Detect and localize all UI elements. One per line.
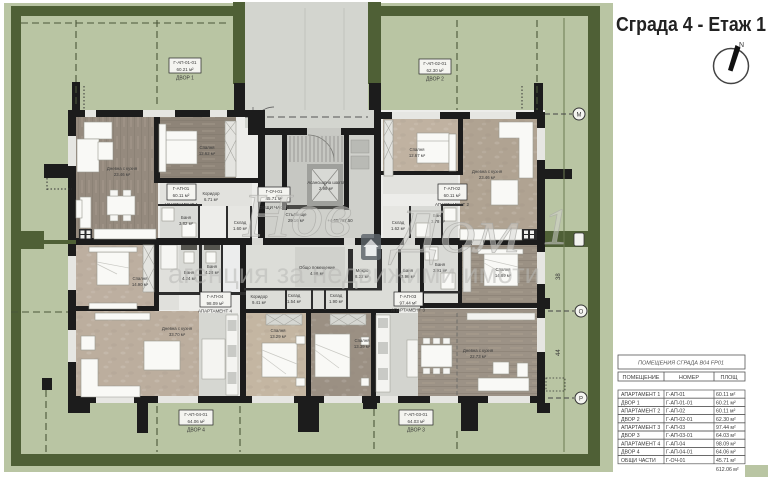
svg-text:38: 38 (556, 273, 562, 280)
svg-text:Г-АП-01-01: Г-АП-01-01 (666, 400, 693, 406)
svg-text:Склад: Склад (288, 293, 301, 298)
svg-text:13.29 м²: 13.29 м² (270, 334, 287, 339)
svg-text:Г-АП-04-01: Г-АП-04-01 (666, 450, 693, 456)
svg-text:Сграда 4 - Етаж 1: Сграда 4 - Етаж 1 (616, 13, 766, 36)
svg-text:Дом: Дом (388, 198, 520, 266)
svg-text:Спалня: Спалня (270, 328, 286, 333)
svg-text:44: 44 (556, 349, 562, 356)
svg-text:Спалня: Спалня (409, 147, 425, 152)
svg-text:9.41 м²: 9.41 м² (252, 300, 267, 305)
svg-text:22.73 м²: 22.73 м² (470, 354, 487, 359)
svg-text:Спалня: Спалня (132, 276, 148, 281)
svg-text:Г-АП-02-01: Г-АП-02-01 (666, 417, 693, 423)
svg-text:1.54 м²: 1.54 м² (287, 299, 302, 304)
svg-text:АПАРТАМЕНТ 3: АПАРТАМЕНТ 3 (621, 425, 660, 431)
svg-text:Г-АП-01: Г-АП-01 (173, 186, 190, 191)
svg-text:Нов: Нов (242, 182, 352, 250)
svg-text:12.67 м²: 12.67 м² (409, 153, 426, 158)
svg-text:Дневна с кухня: Дневна с кухня (463, 348, 494, 353)
svg-text:НОМЕР: НОМЕР (679, 375, 700, 381)
svg-text:ДВОР 2: ДВОР 2 (621, 417, 640, 423)
svg-text:Г-АП-03-01: Г-АП-03-01 (404, 412, 428, 417)
svg-text:ДВОР 3: ДВОР 3 (407, 428, 425, 434)
svg-text:Г-АП-02: Г-АП-02 (666, 409, 685, 415)
svg-text:64.06 м²: 64.06 м² (187, 419, 205, 424)
svg-text:60.11 м²: 60.11 м² (716, 392, 736, 398)
svg-text:ПОМЕЩЕНИЯ СГРАДА В04 FP01: ПОМЕЩЕНИЯ СГРАДА В04 FP01 (638, 361, 724, 367)
svg-text:АПАРТАМЕНТ 1: АПАРТАМЕНТ 1 (621, 392, 660, 398)
svg-text:АПАРТАМЕНТ 4: АПАРТАМЕНТ 4 (621, 441, 660, 447)
svg-text:60.21 м²: 60.21 м² (716, 400, 736, 406)
svg-text:Коридор: Коридор (203, 191, 221, 196)
svg-text:98.09 м²: 98.09 м² (206, 301, 224, 306)
svg-text:6.71 м²: 6.71 м² (204, 197, 219, 202)
svg-text:97.44 м²: 97.44 м² (716, 425, 736, 431)
svg-text:13.39 м²: 13.39 м² (354, 344, 371, 349)
svg-text:64.03 м²: 64.03 м² (407, 419, 425, 424)
svg-text:62.30 м²: 62.30 м² (426, 68, 444, 73)
svg-text:Баня: Баня (181, 215, 192, 220)
svg-text:M: M (577, 113, 582, 119)
svg-text:98.09 м²: 98.09 м² (716, 441, 736, 447)
svg-text:60.11 м²: 60.11 м² (173, 193, 190, 198)
svg-text:1: 1 (543, 199, 569, 256)
svg-text:Дневна с кухня: Дневна с кухня (162, 326, 193, 331)
svg-text:23.46 м²: 23.46 м² (114, 172, 131, 177)
svg-text:Склад: Склад (330, 293, 343, 298)
svg-text:O: O (579, 310, 584, 316)
svg-text:64.06 м²: 64.06 м² (716, 450, 736, 456)
svg-text:60.21 м²: 60.21 м² (176, 67, 194, 72)
svg-text:N: N (739, 42, 744, 49)
svg-text:P: P (579, 397, 583, 403)
svg-text:Г-АП-01: Г-АП-01 (666, 392, 685, 398)
svg-text:Г-АП-02-01: Г-АП-02-01 (423, 61, 447, 66)
svg-text:Спалня: Спалня (354, 338, 370, 343)
svg-text:60.11 м²: 60.11 м² (716, 409, 736, 415)
svg-text:ПОМЕЩЕНИЕ: ПОМЕЩЕНИЕ (623, 375, 660, 381)
svg-text:ДВОР 3: ДВОР 3 (621, 433, 640, 439)
svg-text:ОБЩИ ЧАСТИ: ОБЩИ ЧАСТИ (621, 458, 656, 464)
svg-text:Г-АП-03: Г-АП-03 (400, 294, 417, 299)
svg-text:12.62 м²: 12.62 м² (199, 151, 216, 156)
svg-text:Г-АП-03: Г-АП-03 (666, 425, 685, 431)
svg-text:Г-АП-01-01: Г-АП-01-01 (173, 60, 197, 65)
svg-text:62.30 м²: 62.30 м² (716, 417, 736, 423)
svg-text:Г-АП-04: Г-АП-04 (207, 294, 224, 299)
svg-text:ДВОР 4: ДВОР 4 (187, 428, 205, 434)
svg-text:Г-АП-03-01: Г-АП-03-01 (666, 433, 693, 439)
svg-text:АПАРТАМЕНТ 1: АПАРТАМЕНТ 1 (164, 202, 199, 207)
svg-text:ДВОР 4: ДВОР 4 (621, 450, 640, 456)
svg-text:64.03 м²: 64.03 м² (716, 433, 736, 439)
svg-text:23.46 м²: 23.46 м² (479, 175, 496, 180)
svg-text:АПАРТАМЕНТ 4: АПАРТАМЕНТ 4 (198, 309, 233, 314)
svg-text:ДВОР 1: ДВОР 1 (621, 400, 640, 406)
svg-text:ДВОР 2: ДВОР 2 (426, 77, 444, 83)
svg-text:45.71 м²: 45.71 м² (716, 458, 736, 464)
svg-text:Дневна с кухня: Дневна с кухня (472, 169, 503, 174)
svg-text:АПАРТАМЕНТ 3: АПАРТАМЕНТ 3 (391, 308, 426, 313)
svg-text:Г-АП-04-01: Г-АП-04-01 (184, 412, 208, 417)
svg-text:Г-АП-02: Г-АП-02 (444, 186, 461, 191)
svg-text:агенция за недвижими имоти: агенция за недвижими имоти (168, 258, 540, 289)
svg-text:АПАРТАМЕНТ 2: АПАРТАМЕНТ 2 (621, 409, 660, 415)
svg-text:33.70 м²: 33.70 м² (169, 332, 186, 337)
svg-text:3.82 м²: 3.82 м² (179, 221, 194, 226)
svg-text:Коридор: Коридор (251, 294, 269, 299)
svg-text:1.90 м²: 1.90 м² (329, 299, 344, 304)
svg-text:Г-ОЧ-01: Г-ОЧ-01 (666, 458, 686, 464)
svg-text:97.44 м²: 97.44 м² (399, 301, 417, 306)
svg-text:Дневна с кухня: Дневна с кухня (107, 166, 138, 171)
svg-text:ДВОР 1: ДВОР 1 (176, 76, 194, 82)
svg-text:ПЛОЩ: ПЛОЩ (721, 375, 738, 381)
svg-text:Спалня: Спалня (199, 145, 215, 150)
svg-text:14.90 м²: 14.90 м² (132, 282, 149, 287)
svg-text:612.06 м²: 612.06 м² (716, 467, 739, 473)
svg-text:Г-АП-04: Г-АП-04 (666, 441, 685, 447)
